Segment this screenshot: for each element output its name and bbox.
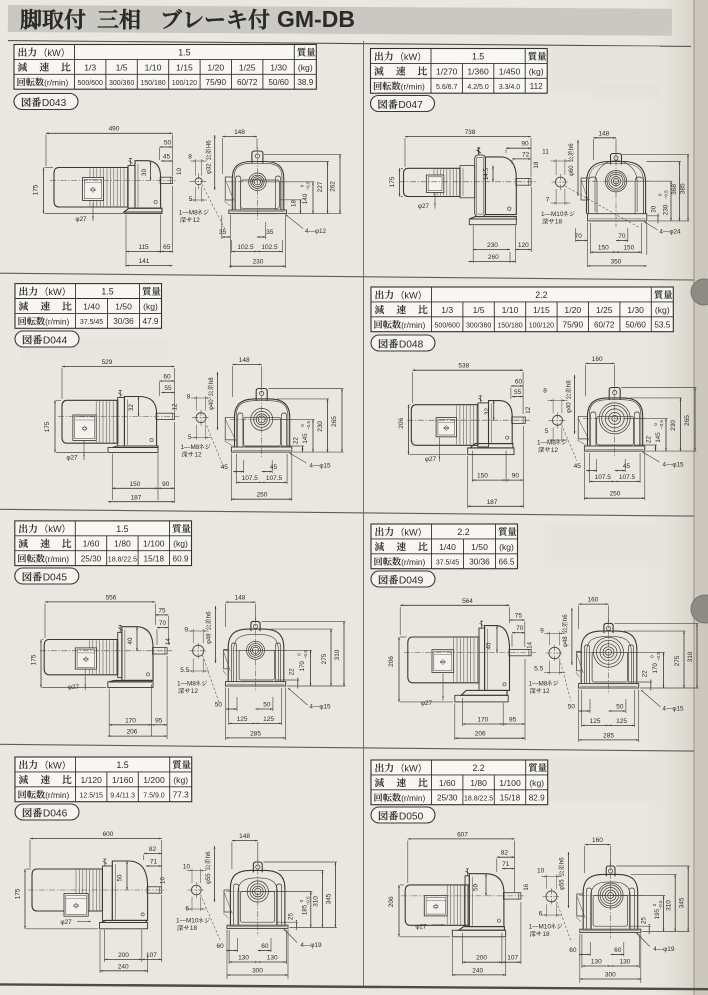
svg-text:22: 22 — [293, 437, 300, 444]
svg-text:170: 170 — [652, 663, 659, 674]
svg-text:15/18: 15/18 — [144, 554, 165, 563]
svg-text:738: 738 — [465, 129, 476, 136]
svg-text:1.5: 1.5 — [116, 524, 128, 534]
svg-text:70: 70 — [575, 233, 583, 240]
svg-text:150/180: 150/180 — [497, 323, 522, 330]
svg-text:1/200: 1/200 — [143, 775, 165, 785]
svg-text:0: 0 — [300, 424, 305, 427]
svg-text:8: 8 — [188, 154, 192, 161]
svg-text:285: 285 — [603, 732, 614, 739]
svg-text:3.3/4.0: 3.3/4.0 — [499, 84, 521, 91]
svg-text:4—φ15: 4—φ15 — [309, 704, 331, 711]
svg-text:(r/min): (r/min) — [45, 554, 69, 564]
svg-text:107: 107 — [146, 952, 157, 959]
svg-text:60: 60 — [216, 943, 224, 950]
svg-text:0: 0 — [652, 903, 657, 906]
svg-text:71: 71 — [150, 859, 158, 866]
svg-text:70: 70 — [618, 233, 626, 240]
svg-text:2.2: 2.2 — [535, 290, 547, 300]
svg-text:5: 5 — [545, 428, 549, 435]
svg-text:529: 529 — [102, 359, 113, 366]
svg-text:φ27: φ27 — [425, 456, 437, 463]
svg-text:(kg): (kg) — [655, 305, 670, 315]
svg-text:60: 60 — [163, 373, 171, 380]
svg-text:160: 160 — [587, 597, 598, 604]
svg-text:1/40: 1/40 — [83, 301, 100, 311]
svg-text:107: 107 — [507, 955, 518, 962]
svg-text:75: 75 — [158, 607, 166, 614]
svg-text:14.5: 14.5 — [483, 167, 490, 180]
svg-text:35: 35 — [219, 229, 227, 236]
svg-text:−0.5: −0.5 — [656, 652, 661, 662]
svg-text:368: 368 — [671, 184, 678, 195]
svg-text:1.5: 1.5 — [178, 47, 190, 57]
svg-text:50: 50 — [568, 703, 576, 710]
svg-text:47.9: 47.9 — [143, 317, 159, 326]
svg-text:0: 0 — [653, 423, 658, 426]
svg-text:102.5: 102.5 — [237, 244, 254, 251]
svg-text:538: 538 — [458, 363, 469, 370]
svg-text:5: 5 — [189, 196, 193, 203]
svg-text:300: 300 — [252, 968, 263, 975]
svg-text:（kW）: （kW） — [39, 760, 71, 770]
svg-text:1—M8: 1—M8 — [537, 439, 556, 446]
svg-text:1/10: 1/10 — [502, 305, 519, 315]
svg-text:φ60: φ60 — [569, 165, 575, 176]
svg-text:1/160: 1/160 — [112, 775, 134, 785]
svg-text:1/50: 1/50 — [471, 542, 488, 552]
svg-text:h6: h6 — [563, 614, 569, 621]
svg-text:206: 206 — [127, 729, 138, 736]
svg-text:4—φ19: 4—φ19 — [653, 946, 675, 953]
svg-text:160: 160 — [592, 356, 603, 363]
svg-text:（kW）: （kW） — [39, 287, 71, 297]
svg-text:490: 490 — [109, 126, 120, 133]
svg-text:60: 60 — [614, 947, 622, 954]
svg-text:60: 60 — [569, 947, 577, 954]
svg-text:175: 175 — [31, 654, 38, 665]
svg-text:4—φ15: 4—φ15 — [309, 463, 331, 470]
svg-text:60.9: 60.9 — [173, 554, 189, 563]
svg-text:240: 240 — [472, 967, 483, 974]
svg-text:45: 45 — [163, 154, 171, 161]
svg-text:1/10: 1/10 — [145, 62, 162, 72]
svg-text:200: 200 — [476, 955, 487, 962]
svg-text:115: 115 — [138, 244, 149, 251]
svg-text:1/3: 1/3 — [84, 62, 96, 72]
svg-text:φ55: φ55 — [206, 873, 212, 884]
svg-text:175: 175 — [33, 184, 40, 195]
svg-text:1/80: 1/80 — [114, 539, 131, 549]
svg-text:262: 262 — [330, 181, 337, 192]
svg-text:50: 50 — [473, 884, 480, 891]
svg-text:148: 148 — [239, 357, 250, 364]
svg-text:170: 170 — [477, 717, 488, 724]
svg-text:12: 12 — [191, 688, 199, 695]
svg-text:145: 145 — [302, 433, 309, 444]
svg-text:22: 22 — [288, 668, 295, 675]
svg-text:18.8/22.5: 18.8/22.5 — [108, 556, 137, 563]
svg-text:10: 10 — [183, 863, 191, 870]
svg-text:12: 12 — [551, 447, 559, 454]
svg-text:30: 30 — [141, 169, 148, 176]
svg-text:（kW）: （kW） — [395, 52, 427, 62]
svg-text:230: 230 — [253, 259, 264, 266]
svg-text:h8: h8 — [209, 377, 215, 384]
svg-text:−0.5: −0.5 — [303, 650, 308, 660]
svg-text:1/25: 1/25 — [239, 62, 256, 72]
svg-text:16: 16 — [523, 883, 530, 890]
svg-text:(kg): (kg) — [529, 778, 544, 788]
svg-text:(r/min): (r/min) — [401, 557, 425, 567]
svg-text:145: 145 — [655, 432, 662, 443]
svg-text:72: 72 — [522, 151, 530, 158]
svg-text:2.2: 2.2 — [457, 527, 469, 537]
svg-text:50: 50 — [215, 701, 223, 708]
svg-text:310: 310 — [687, 651, 694, 662]
svg-text:D049: D049 — [399, 576, 424, 587]
svg-text:45: 45 — [574, 463, 582, 470]
svg-text:75/90: 75/90 — [206, 78, 227, 87]
svg-text:35: 35 — [266, 229, 274, 236]
svg-text:90: 90 — [521, 141, 529, 148]
svg-text:1/360: 1/360 — [467, 66, 489, 76]
svg-text:265: 265 — [684, 415, 691, 426]
svg-text:227: 227 — [317, 181, 324, 192]
svg-text:h6: h6 — [560, 857, 566, 864]
svg-text:9.4/11.3: 9.4/11.3 — [110, 793, 135, 800]
svg-text:230: 230 — [317, 421, 324, 432]
svg-text:60/72: 60/72 — [237, 78, 258, 87]
svg-text:50/60: 50/60 — [625, 321, 646, 330]
svg-text:1/450: 1/450 — [499, 66, 521, 76]
svg-text:60: 60 — [261, 943, 269, 950]
svg-text:240: 240 — [118, 963, 129, 970]
svg-text:8: 8 — [543, 388, 547, 395]
svg-text:7: 7 — [546, 197, 550, 204]
svg-text:345: 345 — [326, 893, 333, 904]
svg-text:1—M8: 1—M8 — [177, 681, 196, 688]
svg-text:100/120: 100/120 — [172, 80, 197, 87]
svg-text:310: 310 — [313, 896, 320, 907]
svg-text:15/18: 15/18 — [500, 794, 521, 803]
svg-text:10: 10 — [537, 867, 545, 874]
svg-text:350: 350 — [611, 258, 622, 265]
svg-text:4—φ19: 4—φ19 — [300, 942, 322, 949]
svg-text:285: 285 — [250, 730, 261, 737]
svg-text:−0.5: −0.5 — [663, 190, 668, 200]
svg-text:275: 275 — [321, 653, 328, 664]
svg-text:18.8/22.5: 18.8/22.5 — [464, 796, 493, 803]
svg-text:90: 90 — [162, 481, 170, 488]
svg-text:141: 141 — [139, 258, 150, 265]
svg-text:φ27: φ27 — [75, 216, 87, 223]
svg-text:5: 5 — [188, 434, 192, 441]
svg-text:25: 25 — [641, 917, 648, 924]
svg-text:−0.5: −0.5 — [659, 420, 664, 430]
svg-text:−0.5: −0.5 — [305, 896, 310, 906]
svg-text:120: 120 — [518, 242, 529, 249]
svg-text:53.5: 53.5 — [654, 321, 670, 330]
svg-text:1—M8: 1—M8 — [529, 680, 548, 687]
svg-text:95: 95 — [155, 717, 163, 724]
svg-text:12: 12 — [172, 403, 179, 410]
svg-text:50: 50 — [263, 701, 271, 708]
svg-text:200: 200 — [118, 952, 129, 959]
svg-text:1/20: 1/20 — [207, 62, 224, 72]
svg-text:206: 206 — [398, 417, 405, 428]
svg-text:1/20: 1/20 — [564, 305, 581, 315]
svg-text:φ27: φ27 — [421, 700, 433, 707]
svg-text:130: 130 — [591, 959, 602, 966]
svg-text:1/5: 1/5 — [116, 62, 128, 72]
svg-text:1/120: 1/120 — [80, 775, 102, 785]
svg-text:300/360: 300/360 — [109, 80, 134, 87]
svg-text:1/60: 1/60 — [439, 778, 456, 788]
svg-text:12: 12 — [542, 688, 550, 695]
svg-text:h6: h6 — [206, 851, 212, 858]
svg-text:14: 14 — [527, 641, 534, 648]
svg-text:90: 90 — [512, 473, 520, 480]
svg-text:(kg): (kg) — [143, 301, 158, 311]
svg-text:4—φ15: 4—φ15 — [662, 462, 684, 469]
svg-text:38.9: 38.9 — [297, 78, 313, 87]
svg-text:600: 600 — [103, 831, 114, 838]
svg-text:φ40: φ40 — [567, 402, 573, 413]
svg-text:12: 12 — [194, 452, 202, 459]
svg-text:77.3: 77.3 — [173, 791, 189, 800]
svg-text:60/72: 60/72 — [594, 321, 615, 330]
svg-text:125: 125 — [263, 716, 274, 723]
svg-text:12.5/15: 12.5/15 — [80, 793, 103, 800]
svg-text:130: 130 — [267, 955, 278, 962]
svg-text:30/36: 30/36 — [469, 558, 490, 567]
svg-text:16: 16 — [160, 877, 167, 884]
svg-text:8: 8 — [187, 394, 191, 401]
svg-text:148: 148 — [234, 129, 245, 136]
svg-text:32: 32 — [128, 404, 135, 411]
svg-text:5.5: 5.5 — [180, 667, 189, 674]
svg-text:82: 82 — [501, 850, 509, 857]
svg-text:7.5/9.0: 7.5/9.0 — [143, 793, 165, 800]
svg-text:175: 175 — [389, 176, 396, 187]
svg-text:φ27: φ27 — [68, 684, 80, 691]
svg-text:150: 150 — [598, 245, 609, 252]
svg-text:（kW）: （kW） — [395, 290, 427, 300]
svg-text:φ32: φ32 — [207, 163, 213, 174]
svg-text:206: 206 — [475, 731, 486, 738]
svg-text:71: 71 — [502, 861, 510, 868]
svg-text:0: 0 — [650, 655, 655, 658]
svg-text:（kW）: （kW） — [395, 527, 427, 537]
svg-text:1/30: 1/30 — [270, 62, 287, 72]
svg-text:φ48: φ48 — [563, 636, 569, 647]
svg-text:70: 70 — [159, 620, 167, 627]
svg-text:h6: h6 — [207, 611, 213, 618]
svg-text:1—M10: 1—M10 — [529, 924, 552, 931]
svg-text:（kW）: （kW） — [38, 48, 70, 58]
svg-text:（kW）: （kW） — [395, 763, 427, 773]
svg-text:D043: D043 — [42, 98, 67, 109]
svg-text:D048: D048 — [399, 340, 424, 351]
svg-text:100/120: 100/120 — [529, 323, 554, 330]
svg-text:D044: D044 — [43, 336, 68, 347]
svg-text:14: 14 — [165, 638, 172, 645]
svg-text:18: 18 — [291, 200, 298, 207]
svg-text:310: 310 — [334, 649, 341, 660]
svg-text:4.2/5.0: 4.2/5.0 — [467, 84, 489, 91]
svg-text:0: 0 — [657, 193, 662, 196]
svg-text:206: 206 — [388, 656, 395, 667]
svg-text:70: 70 — [516, 625, 524, 632]
svg-text:1.5: 1.5 — [116, 760, 128, 770]
svg-text:170: 170 — [299, 661, 306, 672]
svg-text:82.9: 82.9 — [529, 794, 545, 803]
svg-text:260: 260 — [488, 254, 499, 261]
svg-text:φ27: φ27 — [60, 919, 72, 926]
svg-text:1—M10: 1—M10 — [541, 211, 564, 218]
svg-text:130: 130 — [620, 959, 631, 966]
svg-text:187: 187 — [131, 494, 142, 501]
svg-text:1/30: 1/30 — [627, 305, 644, 315]
svg-text:95: 95 — [509, 717, 517, 724]
svg-text:300: 300 — [605, 972, 616, 979]
svg-text:18: 18 — [533, 161, 540, 168]
svg-text:125: 125 — [237, 716, 248, 723]
svg-text:1/50: 1/50 — [115, 301, 132, 311]
svg-text:25/30: 25/30 — [437, 794, 458, 803]
svg-text:107.5: 107.5 — [266, 475, 283, 482]
svg-text:φ27: φ27 — [415, 924, 427, 931]
svg-text:(kg): (kg) — [173, 775, 188, 785]
svg-text:275: 275 — [674, 655, 681, 666]
svg-text:125: 125 — [616, 718, 627, 725]
svg-text:265: 265 — [331, 416, 338, 427]
svg-text:175: 175 — [44, 421, 51, 432]
svg-text:GM-DB: GM-DB — [277, 6, 355, 32]
svg-text:102.5: 102.5 — [261, 244, 278, 251]
svg-text:1/25: 1/25 — [596, 305, 613, 315]
svg-text:1/40: 1/40 — [439, 542, 456, 552]
svg-text:310: 310 — [665, 900, 672, 911]
svg-text:50: 50 — [616, 703, 624, 710]
svg-text:1.5: 1.5 — [472, 51, 484, 61]
svg-text:107.5: 107.5 — [595, 474, 612, 481]
svg-text:(r/min): (r/min) — [44, 77, 68, 87]
svg-text:385: 385 — [679, 183, 686, 194]
svg-text:4—φ15: 4—φ15 — [662, 706, 684, 713]
svg-text:6: 6 — [539, 911, 543, 918]
svg-text:170: 170 — [125, 717, 136, 724]
svg-text:1/100: 1/100 — [143, 539, 165, 549]
svg-text:65: 65 — [163, 244, 171, 251]
svg-text:18: 18 — [190, 925, 198, 932]
svg-text:(r/min): (r/min) — [45, 317, 69, 327]
svg-text:140: 140 — [302, 193, 309, 204]
svg-text:148: 148 — [234, 595, 245, 602]
svg-text:（kW）: （kW） — [39, 524, 71, 534]
svg-text:1/15: 1/15 — [533, 305, 550, 315]
svg-text:φ27: φ27 — [418, 203, 430, 210]
svg-text:45: 45 — [623, 463, 631, 470]
svg-text:(kg): (kg) — [529, 66, 544, 76]
svg-text:75: 75 — [515, 612, 523, 619]
svg-text:556: 556 — [106, 594, 117, 601]
svg-text:230: 230 — [663, 204, 670, 215]
svg-text:148: 148 — [598, 130, 609, 137]
svg-text:(kg): (kg) — [173, 539, 188, 549]
svg-text:40: 40 — [127, 637, 134, 644]
svg-text:130: 130 — [238, 955, 249, 962]
svg-text:250: 250 — [257, 492, 268, 499]
svg-text:1—M10: 1—M10 — [176, 918, 199, 925]
svg-text:(kg): (kg) — [499, 542, 514, 552]
svg-text:h8: h8 — [567, 380, 573, 387]
svg-text:150: 150 — [130, 481, 141, 488]
svg-text:18: 18 — [555, 219, 563, 226]
svg-text:32: 32 — [484, 408, 491, 415]
svg-text:9: 9 — [540, 628, 544, 635]
svg-text:160: 160 — [592, 837, 603, 844]
svg-text:82: 82 — [149, 846, 157, 853]
svg-text:230: 230 — [670, 420, 677, 431]
svg-text:0: 0 — [300, 184, 305, 187]
svg-text:h6: h6 — [569, 143, 575, 150]
svg-text:1.5: 1.5 — [101, 287, 113, 297]
svg-text:22: 22 — [641, 670, 648, 677]
svg-text:40: 40 — [486, 642, 493, 649]
svg-text:345: 345 — [678, 897, 685, 908]
svg-text:0: 0 — [299, 899, 304, 902]
svg-text:107.5: 107.5 — [242, 475, 259, 482]
svg-text:18: 18 — [542, 931, 550, 938]
svg-text:55: 55 — [514, 389, 522, 396]
svg-text:(kg): (kg) — [298, 62, 313, 72]
svg-text:50: 50 — [117, 874, 124, 881]
svg-text:1/60: 1/60 — [83, 539, 100, 549]
svg-text:66.5: 66.5 — [499, 558, 515, 567]
svg-text:564: 564 — [462, 598, 473, 605]
svg-text:1—M8: 1—M8 — [181, 444, 200, 451]
svg-text:10: 10 — [176, 168, 183, 175]
svg-text:1/5: 1/5 — [473, 305, 485, 315]
svg-text:500/600: 500/600 — [435, 323, 460, 330]
svg-text:250: 250 — [610, 491, 621, 498]
svg-text:1/270: 1/270 — [436, 66, 458, 76]
svg-text:107.5: 107.5 — [619, 474, 636, 481]
svg-text:H6: H6 — [207, 140, 213, 148]
svg-text:112: 112 — [530, 82, 543, 91]
svg-text:(r/min): (r/min) — [401, 793, 425, 803]
svg-text:206: 206 — [388, 896, 395, 907]
svg-text:55: 55 — [164, 385, 172, 392]
svg-text:φ48: φ48 — [207, 633, 213, 644]
svg-text:1—M8: 1—M8 — [179, 210, 198, 217]
svg-text:75/90: 75/90 — [563, 321, 584, 330]
svg-text:−0.5: −0.5 — [306, 421, 311, 431]
svg-text:D046: D046 — [43, 809, 68, 820]
svg-text:(r/min): (r/min) — [401, 81, 425, 91]
svg-text:125: 125 — [590, 718, 601, 725]
svg-text:25: 25 — [288, 913, 295, 920]
svg-text:D047: D047 — [398, 100, 423, 111]
svg-text:−0.5: −0.5 — [306, 181, 311, 191]
svg-text:150: 150 — [623, 245, 634, 252]
svg-text:37.5/45: 37.5/45 — [436, 560, 459, 567]
svg-text:0: 0 — [297, 653, 302, 656]
svg-text:45: 45 — [270, 464, 278, 471]
svg-text:45: 45 — [221, 464, 229, 471]
